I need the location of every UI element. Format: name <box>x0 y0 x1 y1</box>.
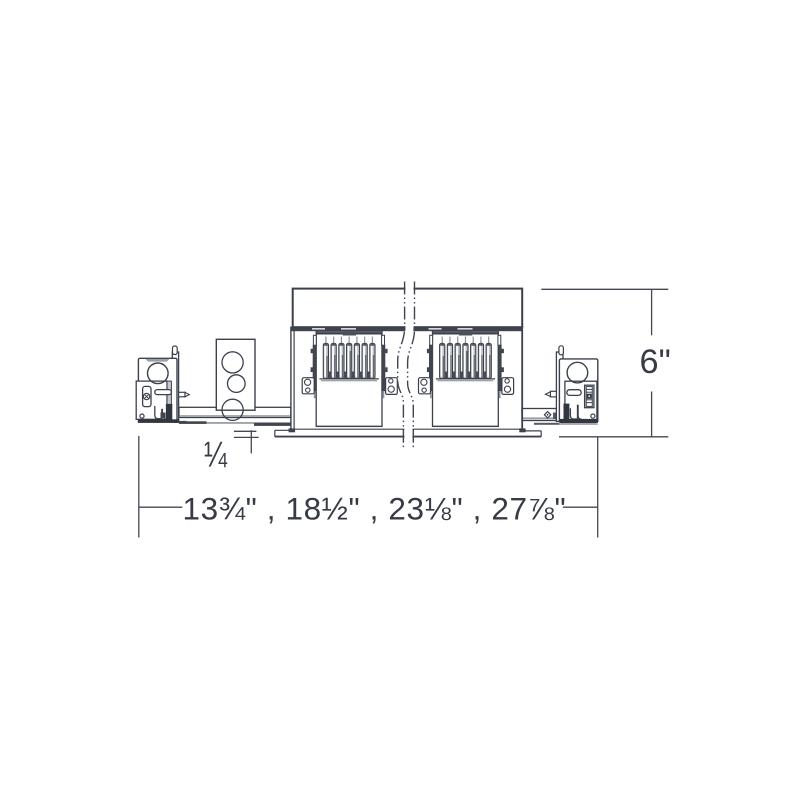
svg-text:13¾" , 18½" , 23⅛" , 27⅞": 13¾" , 18½" , 23⅛" , 27⅞" <box>183 490 567 526</box>
svg-text:6": 6" <box>640 343 671 381</box>
svg-text:¼: ¼ <box>204 433 228 474</box>
